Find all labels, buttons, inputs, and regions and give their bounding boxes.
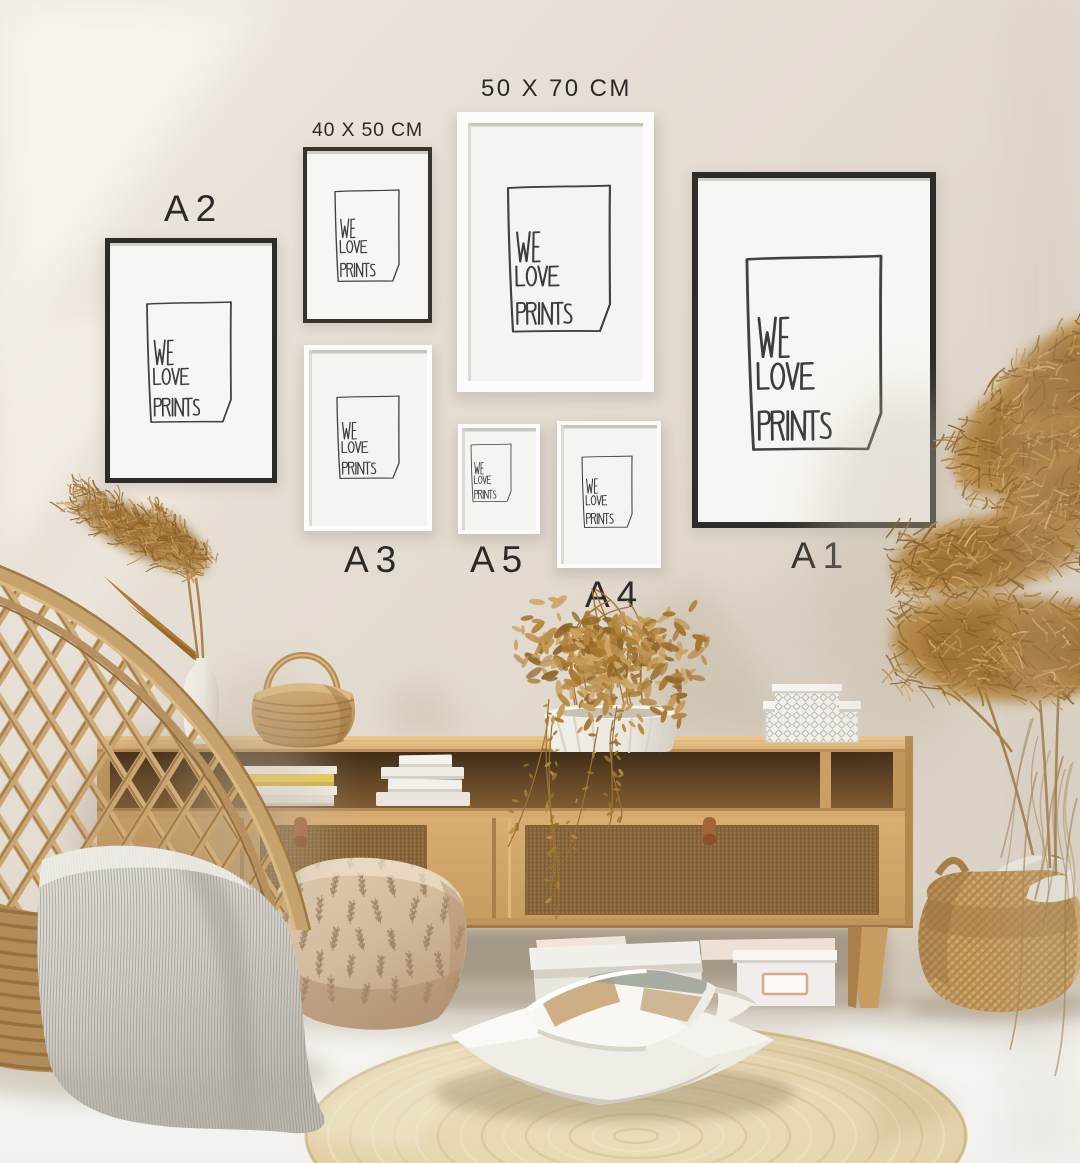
svg-text:A3: A3 bbox=[344, 539, 403, 580]
svg-text:40 X 50 CM: 40 X 50 CM bbox=[312, 119, 423, 141]
svg-text:A5: A5 bbox=[470, 539, 529, 580]
svg-text:A2: A2 bbox=[164, 188, 223, 229]
svg-text:50 X 70 CM: 50 X 70 CM bbox=[481, 75, 632, 102]
